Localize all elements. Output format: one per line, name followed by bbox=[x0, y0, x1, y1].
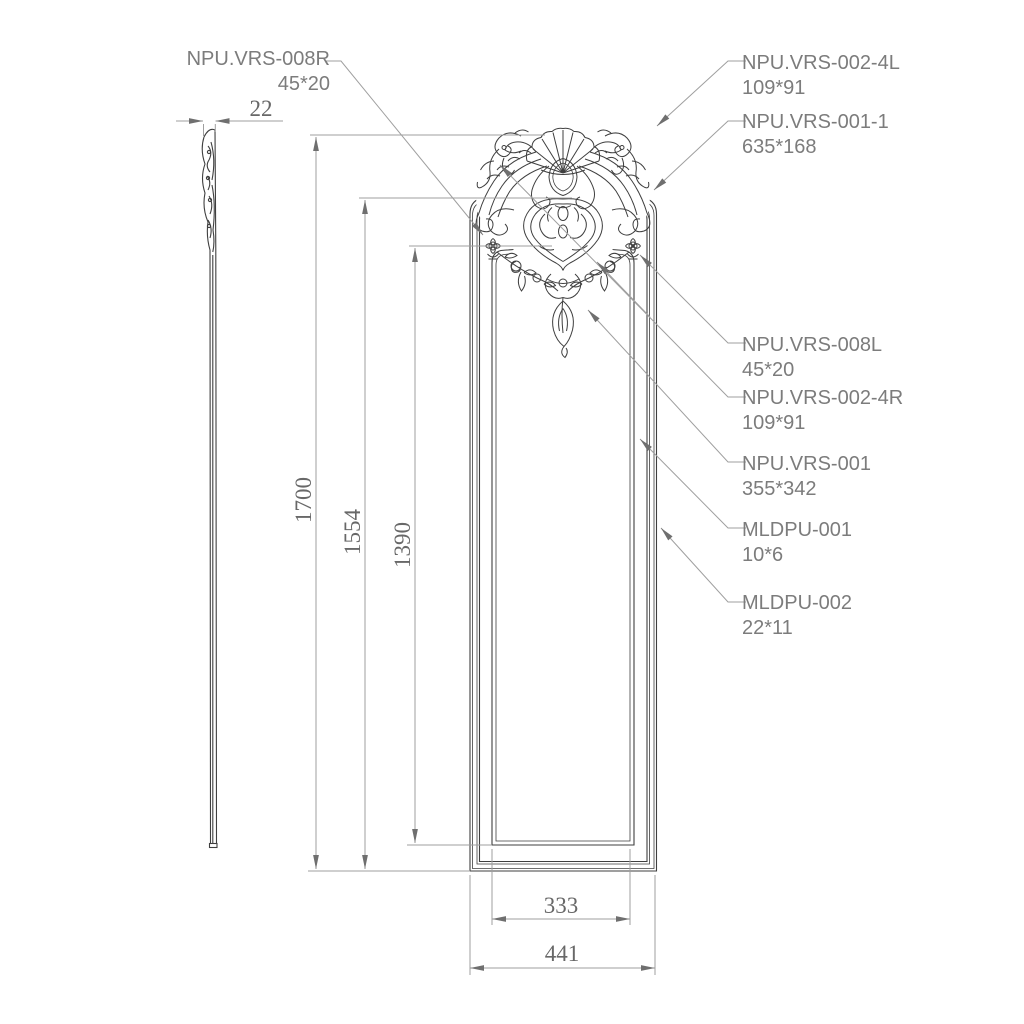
part-label-npu-vrs-008r: NPU.VRS-008R 45*20 bbox=[140, 47, 330, 97]
part-size: 10*6 bbox=[742, 543, 852, 568]
part-label-npu-vrs-002-4l: NPU.VRS-002-4L 109*91 bbox=[742, 51, 900, 101]
dimension-panel-height: 1390 bbox=[390, 495, 416, 595]
drawing-canvas: NPU.VRS-008R 45*20 NPU.VRS-002-4L 109*91… bbox=[0, 0, 1024, 1024]
part-number: NPU.VRS-002-4R bbox=[742, 386, 903, 411]
dimension-frame-height: 1554 bbox=[340, 482, 366, 582]
part-size: 45*20 bbox=[140, 72, 330, 97]
part-size: 45*20 bbox=[742, 358, 882, 383]
part-size: 355*342 bbox=[742, 477, 871, 502]
part-label-mldpu-001: MLDPU-001 10*6 bbox=[742, 518, 852, 568]
part-number: NPU.VRS-001-1 bbox=[742, 110, 889, 135]
part-size: 109*91 bbox=[742, 411, 903, 436]
side-profile-view bbox=[202, 129, 217, 847]
dimension-thickness: 22 bbox=[236, 96, 286, 122]
part-number: MLDPU-001 bbox=[742, 518, 852, 543]
dimension-overall-width: 441 bbox=[522, 941, 602, 967]
part-number: NPU.VRS-008L bbox=[742, 333, 882, 358]
part-label-npu-vrs-002-4r: NPU.VRS-002-4R 109*91 bbox=[742, 386, 903, 436]
part-label-npu-vrs-008l: NPU.VRS-008L 45*20 bbox=[742, 333, 882, 383]
part-label-npu-vrs-001-1: NPU.VRS-001-1 635*168 bbox=[742, 110, 889, 160]
dimension-overall-height: 1700 bbox=[291, 450, 317, 550]
part-label-npu-vrs-001: NPU.VRS-001 355*342 bbox=[742, 452, 871, 502]
part-number: NPU.VRS-001 bbox=[742, 452, 871, 477]
part-number: NPU.VRS-002-4L bbox=[742, 51, 900, 76]
part-label-mldpu-002: MLDPU-002 22*11 bbox=[742, 591, 852, 641]
part-size: 635*168 bbox=[742, 135, 889, 160]
part-size: 109*91 bbox=[742, 76, 900, 101]
part-number: MLDPU-002 bbox=[742, 591, 852, 616]
part-size: 22*11 bbox=[742, 616, 852, 641]
dimension-panel-width: 333 bbox=[521, 893, 601, 919]
part-number: NPU.VRS-008R bbox=[140, 47, 330, 72]
